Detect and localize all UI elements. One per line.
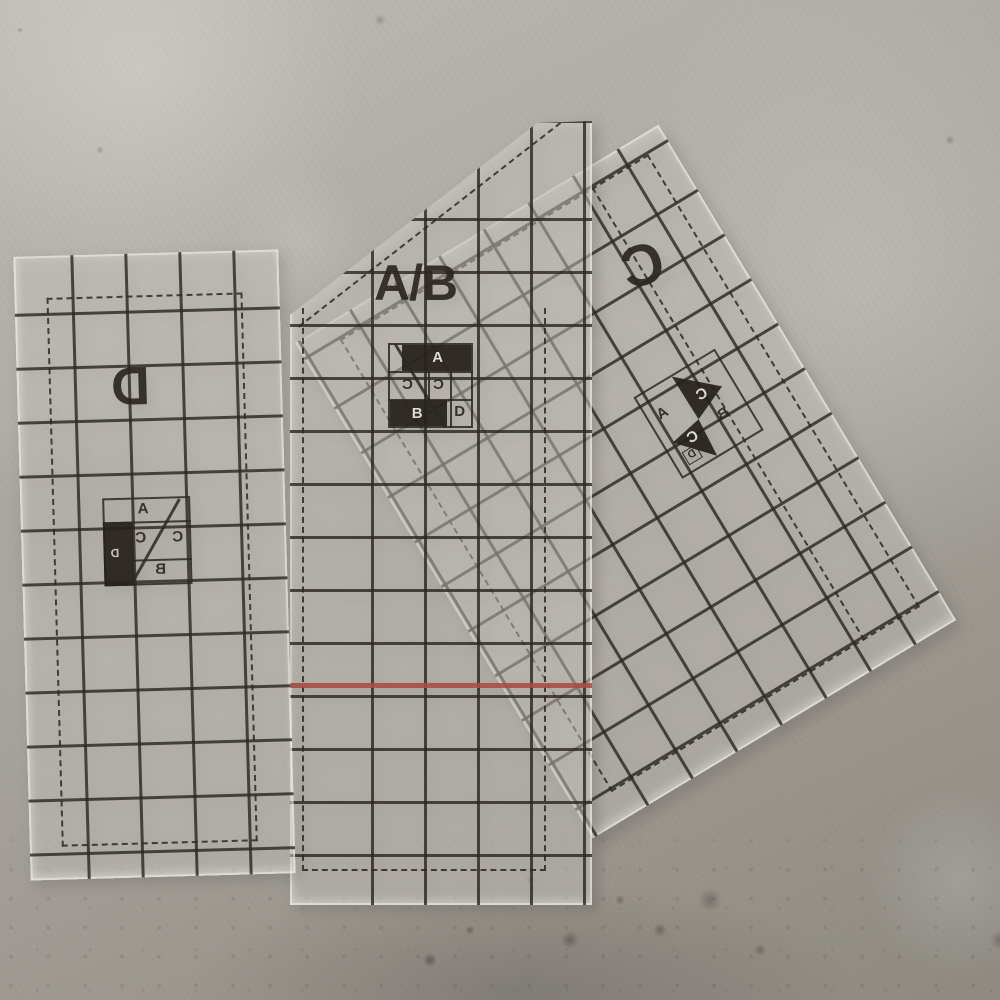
concrete-bottom-mottling [0, 800, 1000, 1000]
photo-quilting-ruler-set: C A C C B D A/B [0, 0, 1000, 1000]
